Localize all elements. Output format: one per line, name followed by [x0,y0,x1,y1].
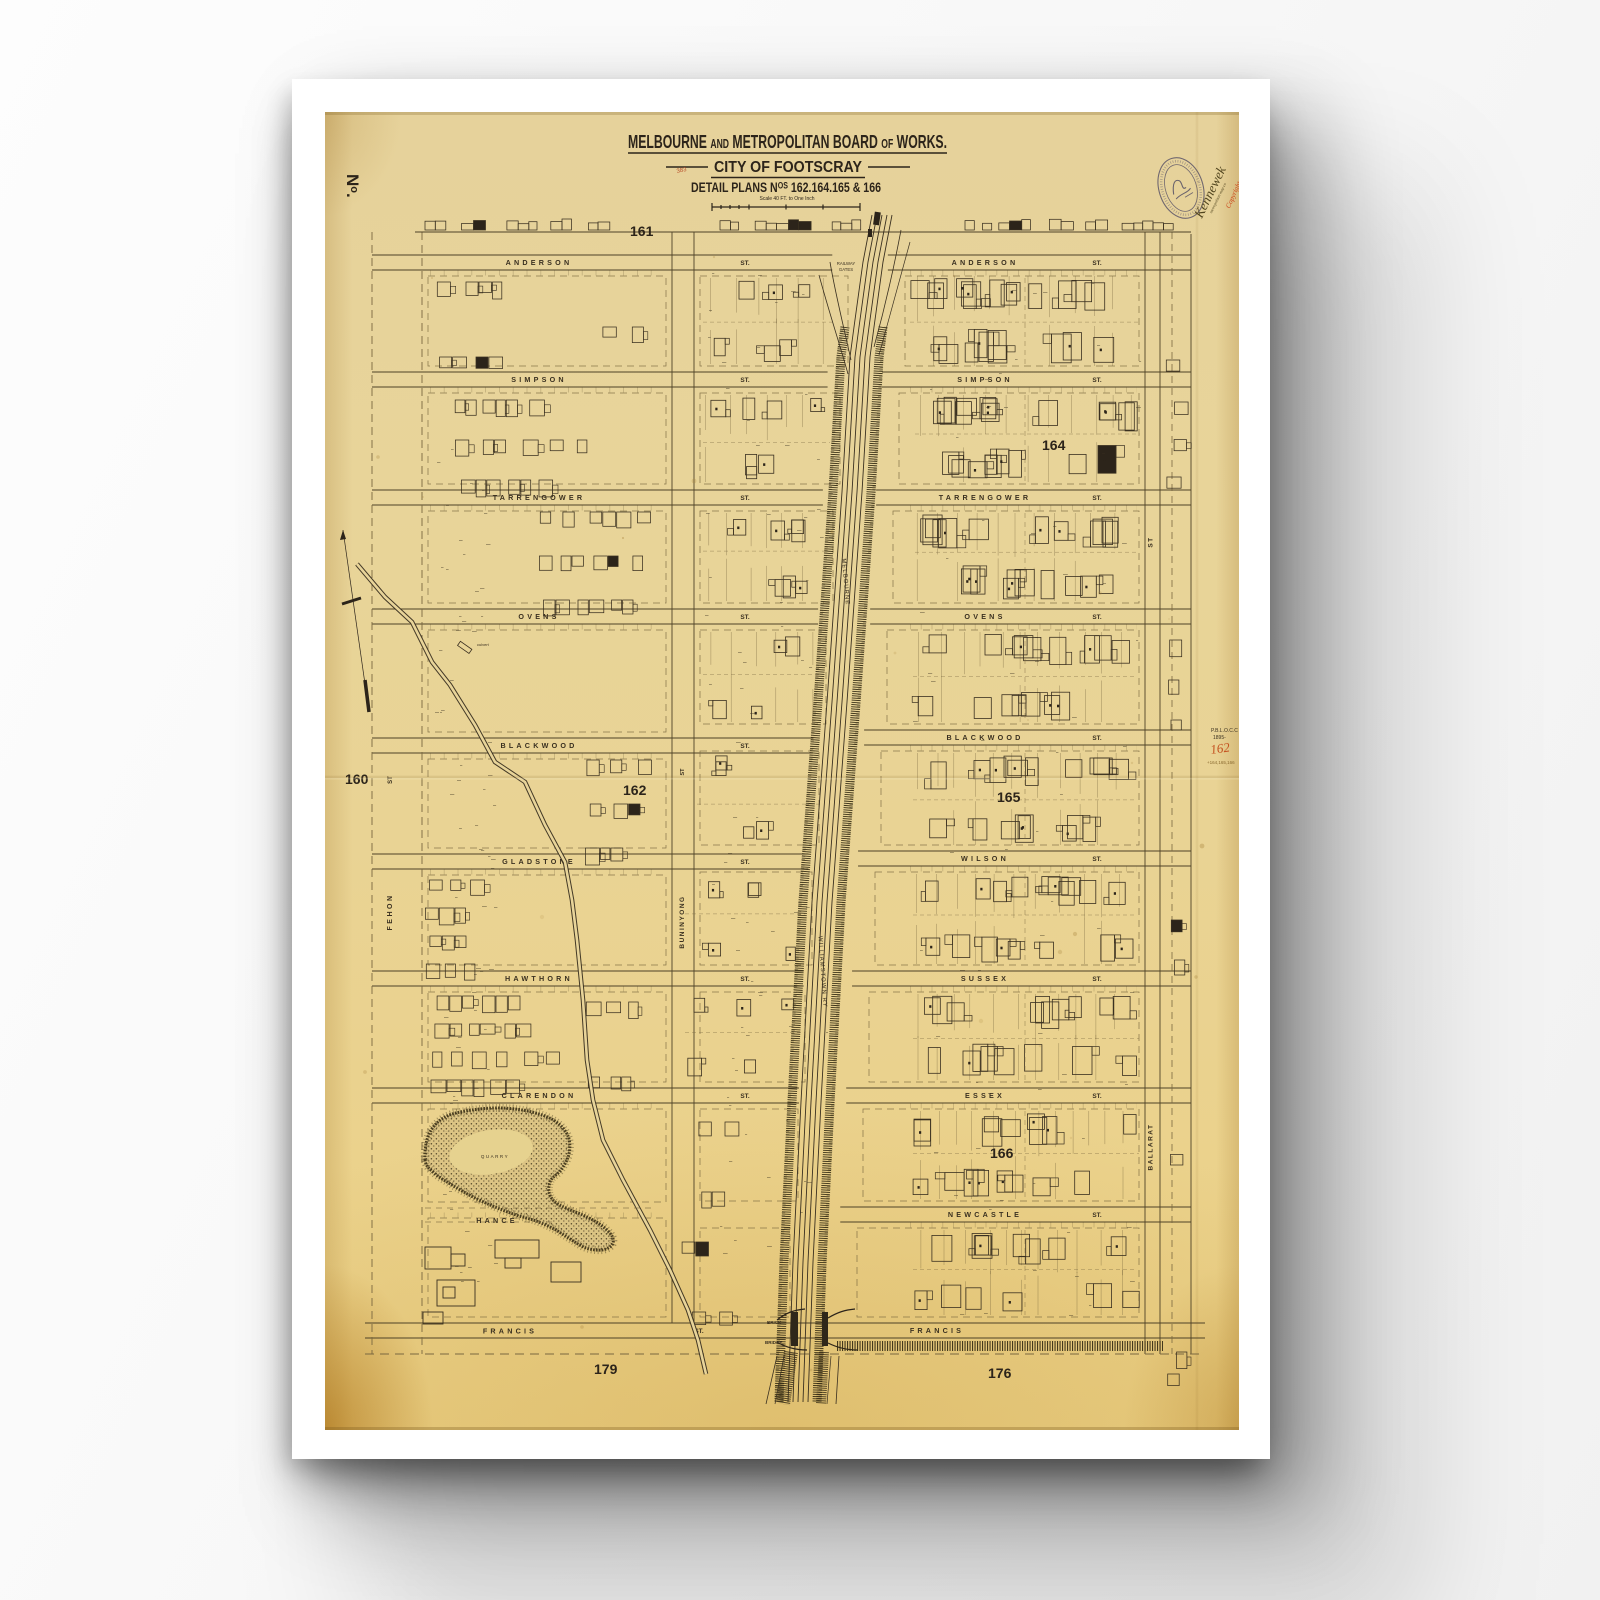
svg-text:ST.: ST. [740,859,749,866]
svg-text:BRICK: BRICK [767,1320,782,1325]
svg-text:ST.: ST. [740,1093,749,1100]
svg-text:P.B.L.O.C.C: P.B.L.O.C.C [1211,728,1238,734]
svg-text:ESSEX: ESSEX [965,1091,1005,1100]
svg-text:ST: ST [1148,536,1155,547]
svg-text:ST.: ST. [1092,260,1101,267]
svg-text:FRANCIS: FRANCIS [910,1326,964,1335]
svg-text:ANDERSON: ANDERSON [952,258,1019,267]
svg-text:162: 162 [623,782,647,798]
svg-text:164: 164 [1042,437,1066,453]
svg-text:165: 165 [997,789,1021,805]
svg-text:162: 162 [1209,739,1231,757]
svg-text:MELBOURNE: MELBOURNE [840,558,850,605]
svg-text:ST.: ST. [740,614,749,621]
svg-text:QUARRY: QUARRY [481,1154,509,1159]
svg-text:RAILWAY: RAILWAY [837,261,856,266]
svg-text:OVENS: OVENS [964,612,1005,621]
svg-text:176: 176 [988,1365,1012,1381]
svg-text:BLACKWOOD: BLACKWOOD [946,733,1023,742]
svg-text:ST.: ST. [740,260,749,267]
svg-text:SUSSEX: SUSSEX [961,974,1009,983]
svg-text:ST.: ST. [1092,614,1101,621]
svg-text:CLARENDON: CLARENDON [502,1091,577,1100]
svg-text:SIMPSON: SIMPSON [511,375,567,384]
svg-text:GATES: GATES [839,267,853,272]
svg-text:MELBOURNE AND METROPOLITAN BOA: MELBOURNE AND METROPOLITAN BOARD OF WORK… [628,131,947,152]
svg-text:ST.: ST. [1092,495,1101,502]
svg-text:383: 383 [676,167,688,175]
svg-text:ST.: ST. [740,743,749,750]
svg-text:ST.: ST. [740,976,749,983]
svg-text:culvert: culvert [477,642,490,647]
svg-text:NEWCASTLE: NEWCASTLE [948,1210,1022,1219]
svg-text:TARRENGOWER: TARRENGOWER [939,493,1032,502]
svg-text:HAWTHORN: HAWTHORN [505,974,573,983]
svg-text:ST.: ST. [740,377,749,384]
svg-text:No.: No. [343,174,362,198]
svg-text:ST.: ST. [1092,377,1101,384]
svg-text:ST.: ST. [740,495,749,502]
svg-text:161: 161 [630,223,654,239]
svg-text:ST.: ST. [1092,735,1101,742]
svg-text:CITY OF FOOTSCRAY: CITY OF FOOTSCRAY [714,159,863,176]
svg-text:+164,165,166: +164,165,166 [1207,760,1235,765]
svg-text:ANDERSON: ANDERSON [506,258,573,267]
svg-text:FRANCIS: FRANCIS [483,1327,537,1336]
svg-text:BRIDGE: BRIDGE [765,1340,783,1345]
svg-text:BLACKWOOD: BLACKWOOD [500,741,577,750]
svg-text:OVENS: OVENS [518,612,559,621]
svg-text:BUNINYONG: BUNINYONG [679,895,686,948]
svg-text:166: 166 [990,1145,1014,1161]
svg-text:HANCE: HANCE [476,1216,518,1225]
svg-text:DETAIL PLANS NOS 162.164.165 &: DETAIL PLANS NOS 162.164.165 & 166 [691,180,881,195]
svg-text:ST.: ST. [1092,1093,1101,1100]
svg-text:WILSON: WILSON [961,854,1009,863]
svg-text:ST.: ST. [1092,1212,1101,1219]
svg-text:BALLARAT: BALLARAT [1148,1124,1155,1171]
svg-text:ST.: ST. [1092,856,1101,863]
svg-text:179: 179 [594,1361,618,1377]
svg-text:Scale 40 FT. to One Inch: Scale 40 FT. to One Inch [759,196,814,202]
svg-text:FEHON: FEHON [387,894,394,931]
svg-text:ST.: ST. [1092,976,1101,983]
